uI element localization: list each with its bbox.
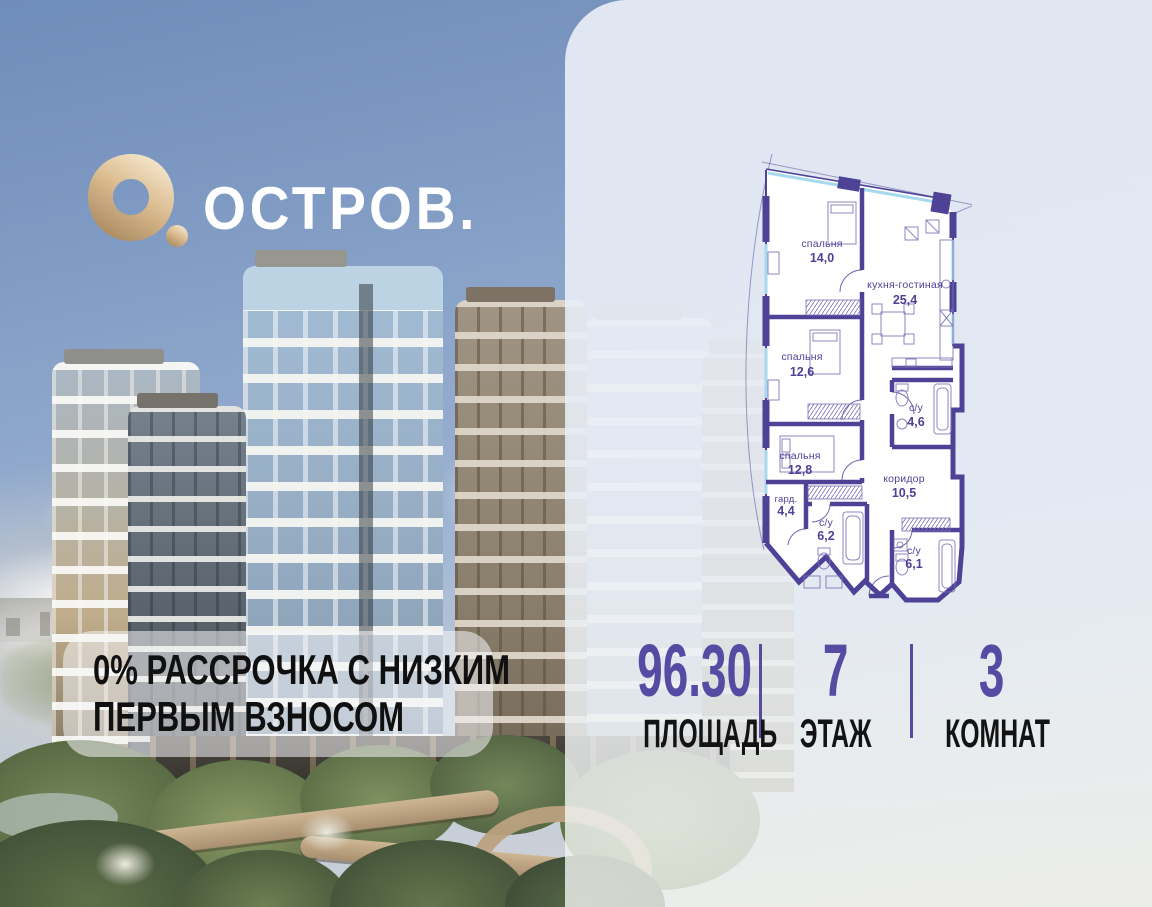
room-label-bedroom-2: спальня [781, 351, 822, 363]
room-label-bath-2: с/у [819, 517, 834, 529]
room-label-bedroom-1: спальня [801, 238, 842, 250]
brand-logo: ОСТРОВ. [85, 150, 545, 260]
stat-rooms-label: КОМНАТ [913, 714, 1070, 754]
stat-rooms: 3 КОМНАТ [913, 636, 1070, 754]
room-area-bath-3: 6,1 [905, 557, 922, 571]
stat-floor-label: ЭТАЖ [762, 714, 910, 754]
room-label-corridor: коридор [883, 473, 924, 485]
room-label-bath-1: с/у [909, 402, 924, 414]
brand-name: ОСТРОВ. [203, 174, 478, 243]
room-area-kitchen: 25,4 [893, 293, 917, 307]
promo-line-1: 0% РАССРОЧКА С НИЗКИМ [93, 646, 510, 693]
promo-line-2: ПЕРВЫМ ВЗНОСОМ [93, 693, 510, 740]
room-area-wardrobe: 4,4 [777, 504, 794, 518]
stat-rooms-value: 3 [913, 636, 1070, 706]
room-label-bedroom-3: спальня [779, 450, 820, 462]
room-area-bedroom-1: 14,0 [810, 251, 834, 265]
promo-banner: 0% РАССРОЧКА С НИЗКИМ ПЕРВЫМ ВЗНОСОМ [63, 631, 493, 757]
stat-floor: 7 ЭТАЖ [762, 636, 910, 754]
blossom-bush [95, 842, 155, 886]
room-area-bedroom-2: 12,6 [790, 365, 814, 379]
stat-floor-value: 7 [762, 636, 910, 706]
apartment-stats: 96.30 ПЛОЩАДЬ 7 ЭТАЖ 3 КОМНАТ [602, 636, 1070, 754]
blossom-bush [300, 812, 354, 852]
room-area-bath-2: 6,2 [817, 529, 834, 543]
gold-donut-icon [85, 150, 205, 260]
floor-plan: спальня 14,0 кухня-гостиная 25,4 спальня… [742, 152, 972, 614]
room-area-corridor: 10,5 [892, 486, 916, 500]
stat-area-value: 96.30 [602, 636, 759, 706]
stat-area: 96.30 ПЛОЩАДЬ [602, 636, 759, 754]
room-label-kitchen: кухня-гостиная [867, 279, 943, 291]
room-area-bedroom-3: 12,8 [788, 463, 812, 477]
room-area-bath-1: 4,6 [907, 415, 924, 429]
stat-area-label: ПЛОЩАДЬ [602, 714, 759, 754]
room-label-bath-3: с/у [907, 545, 922, 557]
real-estate-ad: ОСТРОВ. 0% РАССРОЧКА С НИЗКИМ ПЕРВЫМ ВЗН… [0, 0, 1152, 907]
